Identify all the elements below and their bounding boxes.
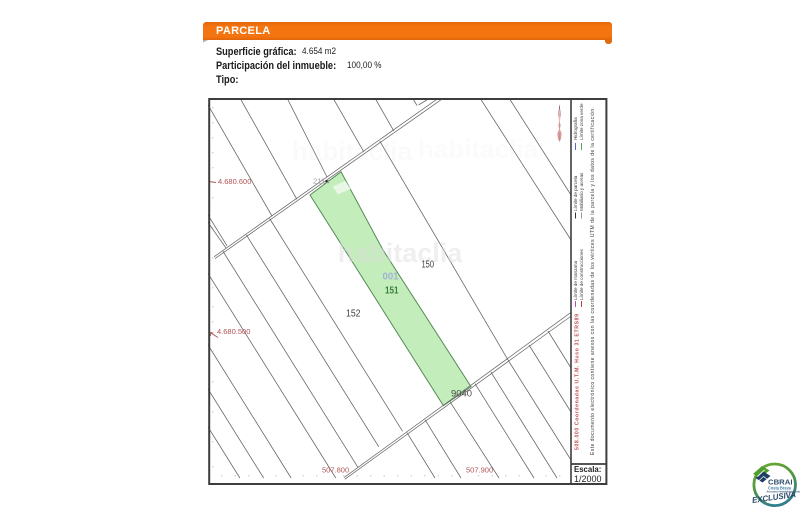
svg-text:508.000 Coordenadas U.T.M. Hus: 508.000 Coordenadas U.T.M. Huso 31 ETRS8… bbox=[575, 314, 581, 450]
svg-text:EXCLUSIVA: EXCLUSIVA bbox=[752, 490, 797, 505]
svg-text:Mobiliario y aceras: Mobiliario y aceras bbox=[579, 172, 584, 211]
svg-text:Hidrografía: Hidrografía bbox=[573, 117, 578, 140]
svg-text:4.680.500: 4.680.500 bbox=[217, 327, 250, 336]
svg-text:Este documento electrónico con: Este documento electrónico contiene anex… bbox=[590, 107, 596, 455]
svg-text:4.680.600: 4.680.600 bbox=[218, 177, 251, 186]
svg-text:habitaclia: habitaclia bbox=[418, 134, 538, 164]
svg-text:Límite de parcela: Límite de parcela bbox=[573, 175, 578, 211]
svg-text:habitaclia: habitaclia bbox=[292, 136, 412, 166]
svg-text:Límite zona verde: Límite zona verde bbox=[579, 103, 584, 140]
svg-text:Límite de construcciones: Límite de construcciones bbox=[579, 248, 584, 300]
svg-text:1/2000: 1/2000 bbox=[574, 474, 602, 484]
svg-text:9040: 9040 bbox=[451, 389, 472, 400]
svg-text:152: 152 bbox=[346, 309, 361, 320]
svg-text:Límite de manzana: Límite de manzana bbox=[573, 260, 578, 300]
svg-text:507.900: 507.900 bbox=[466, 466, 493, 475]
svg-text:habitaclia: habitaclia bbox=[338, 238, 464, 268]
svg-text:CBRAI: CBRAI bbox=[768, 477, 793, 486]
svg-text:001: 001 bbox=[383, 272, 399, 283]
svg-text:507.800: 507.800 bbox=[322, 466, 349, 475]
svg-text:Escala:: Escala: bbox=[574, 465, 601, 474]
svg-text:150: 150 bbox=[422, 260, 435, 271]
svg-text:151: 151 bbox=[385, 285, 399, 297]
